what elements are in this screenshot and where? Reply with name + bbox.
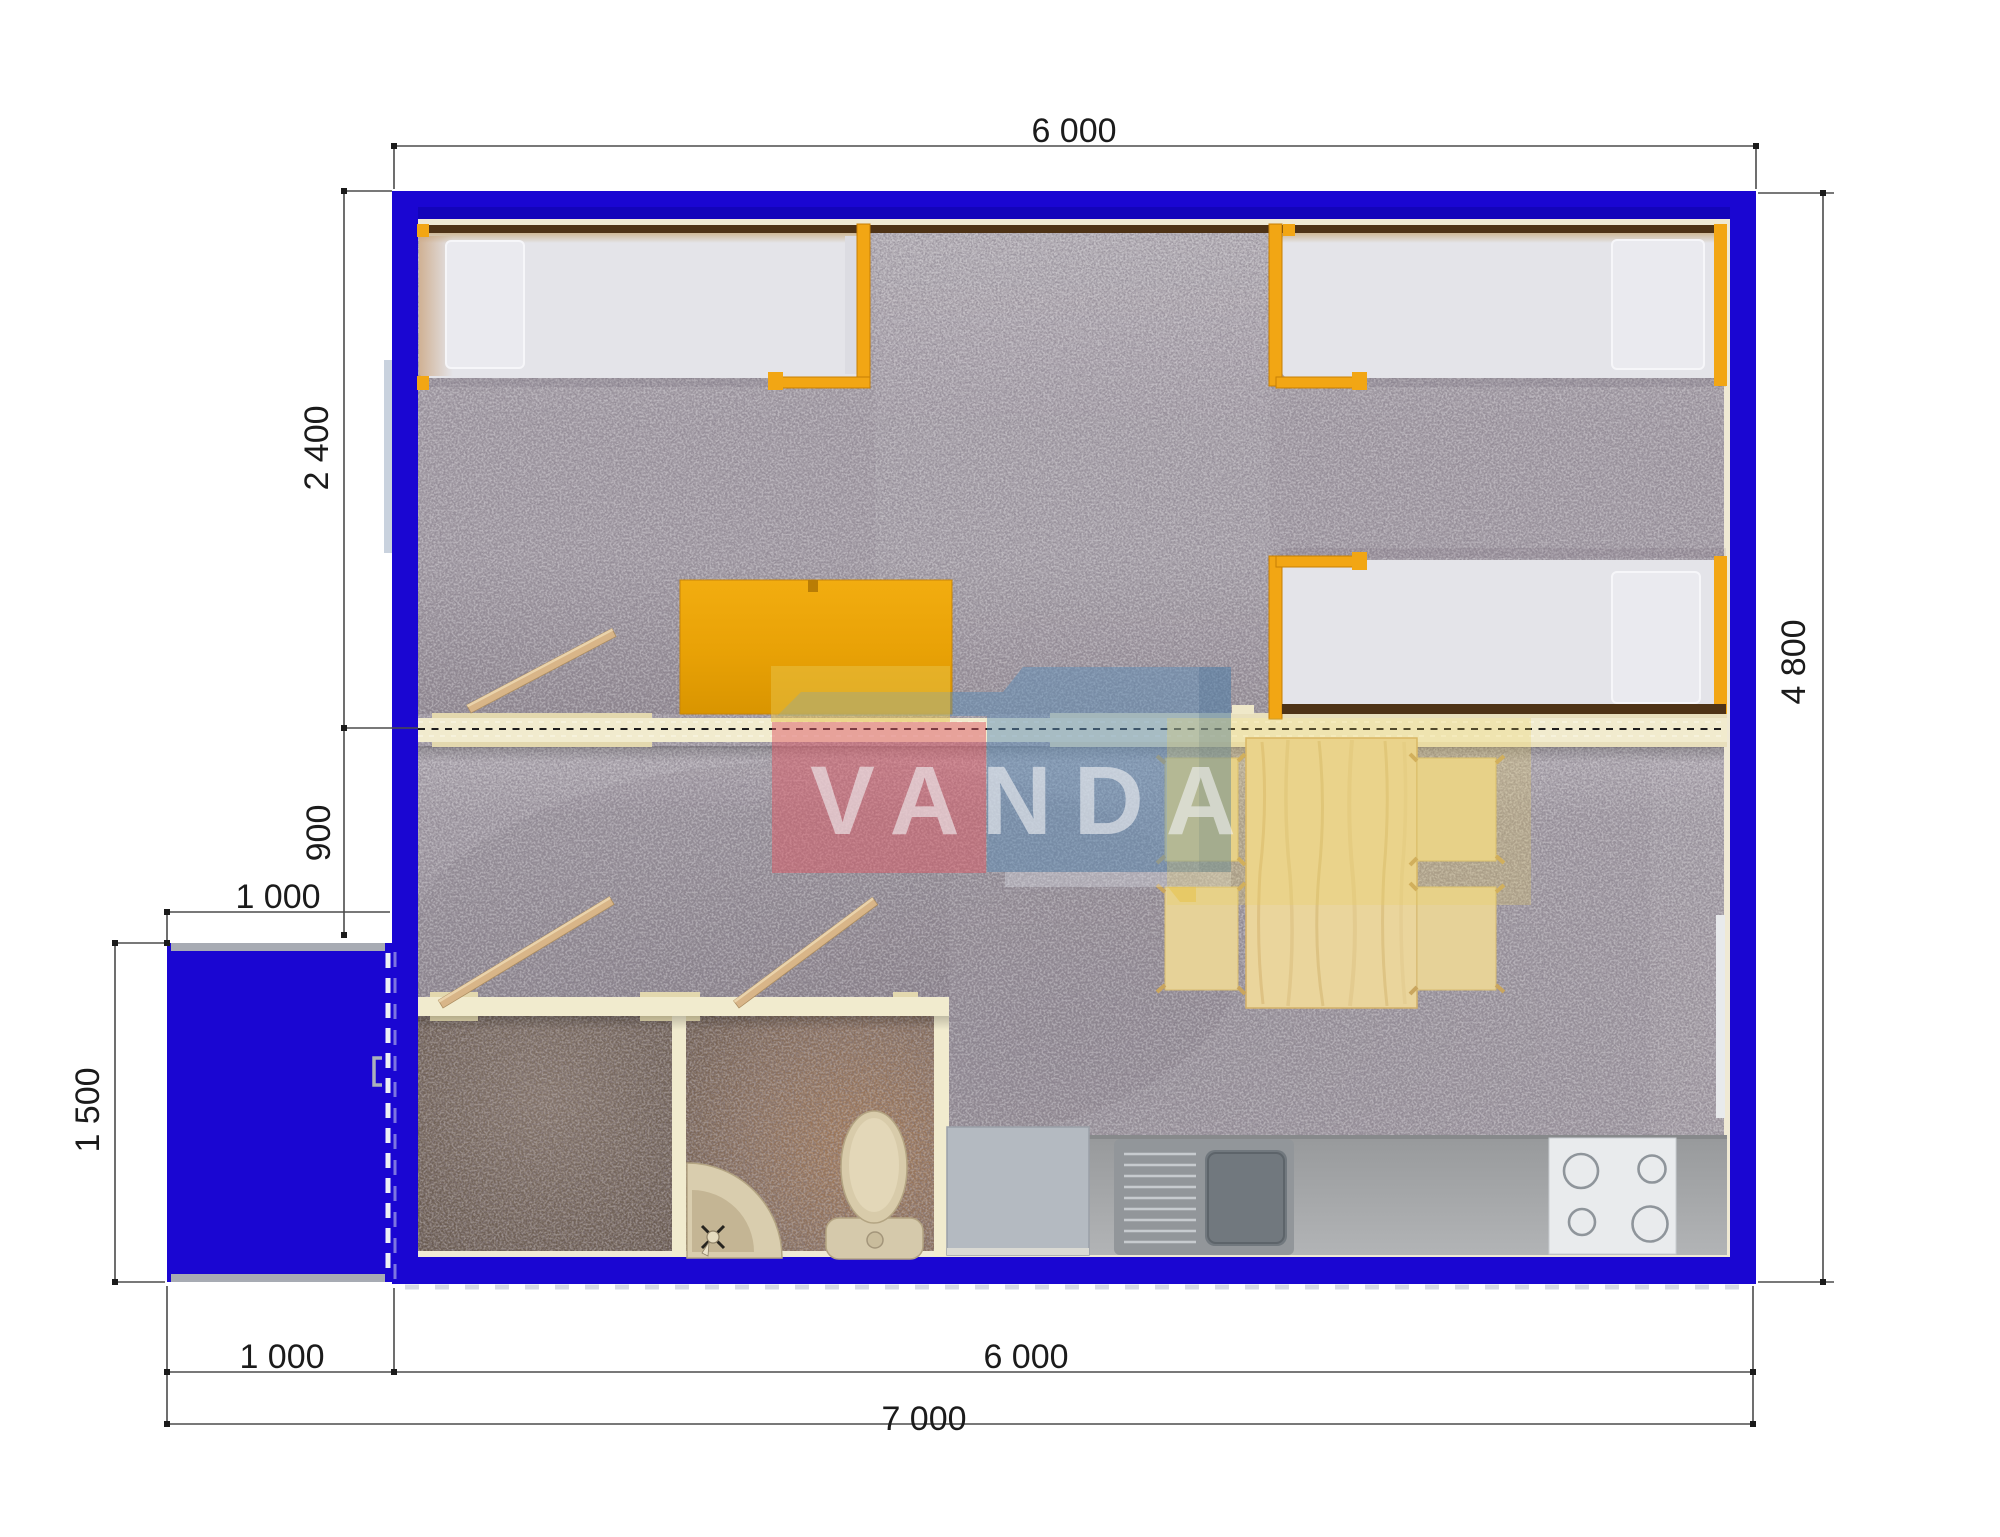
svg-text:1 000: 1 000 <box>235 878 320 916</box>
svg-text:VANDA: VANDA <box>810 746 1258 855</box>
svg-text:6 000: 6 000 <box>1031 112 1116 150</box>
svg-text:7 000: 7 000 <box>881 1400 966 1438</box>
svg-text:900: 900 <box>300 805 338 862</box>
svg-text:6 000: 6 000 <box>983 1338 1068 1376</box>
svg-text:1 500: 1 500 <box>69 1067 107 1152</box>
svg-text:1 000: 1 000 <box>239 1338 324 1376</box>
svg-text:4 800: 4 800 <box>1775 619 1813 704</box>
svg-text:2 400: 2 400 <box>298 405 336 490</box>
